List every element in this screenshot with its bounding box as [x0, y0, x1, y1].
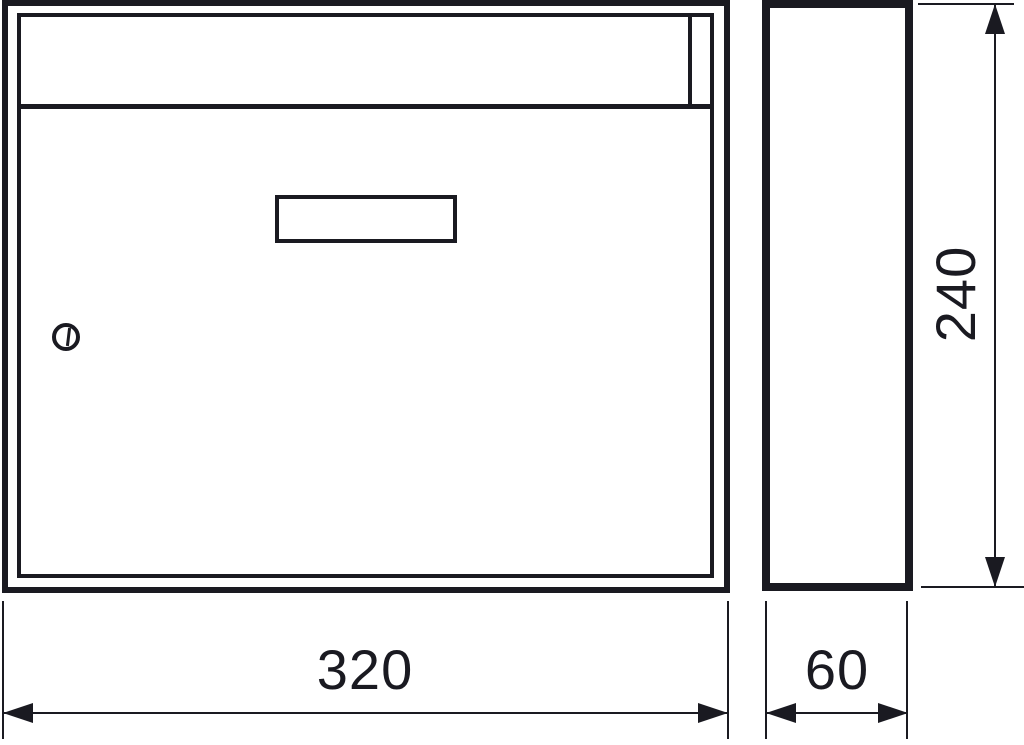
nameplate	[275, 195, 457, 243]
dimension-depth-label: 60	[737, 640, 937, 700]
drawing-canvas: 320 60 240	[0, 0, 1024, 745]
dimension-height-label: 240	[926, 194, 986, 394]
dimension-line	[994, 4, 996, 587]
arrowhead-down-icon	[985, 557, 1005, 587]
extension-line	[921, 586, 1024, 588]
arrowhead-left-icon	[3, 703, 33, 723]
flap-end-divider-line	[688, 16, 692, 108]
arrowhead-right-icon	[698, 703, 728, 723]
cylinder-lock-icon	[52, 323, 80, 351]
dimension-width-label: 320	[265, 640, 465, 700]
arrowhead-up-icon	[985, 4, 1005, 34]
front-door-panel	[17, 13, 714, 578]
lock-keyway-slot	[66, 328, 71, 346]
mail-slot-flap-line	[17, 104, 714, 109]
side-body-rect	[762, 0, 913, 591]
dimension-line	[3, 712, 728, 714]
arrowhead-right-icon	[878, 703, 908, 723]
arrowhead-left-icon	[766, 703, 796, 723]
